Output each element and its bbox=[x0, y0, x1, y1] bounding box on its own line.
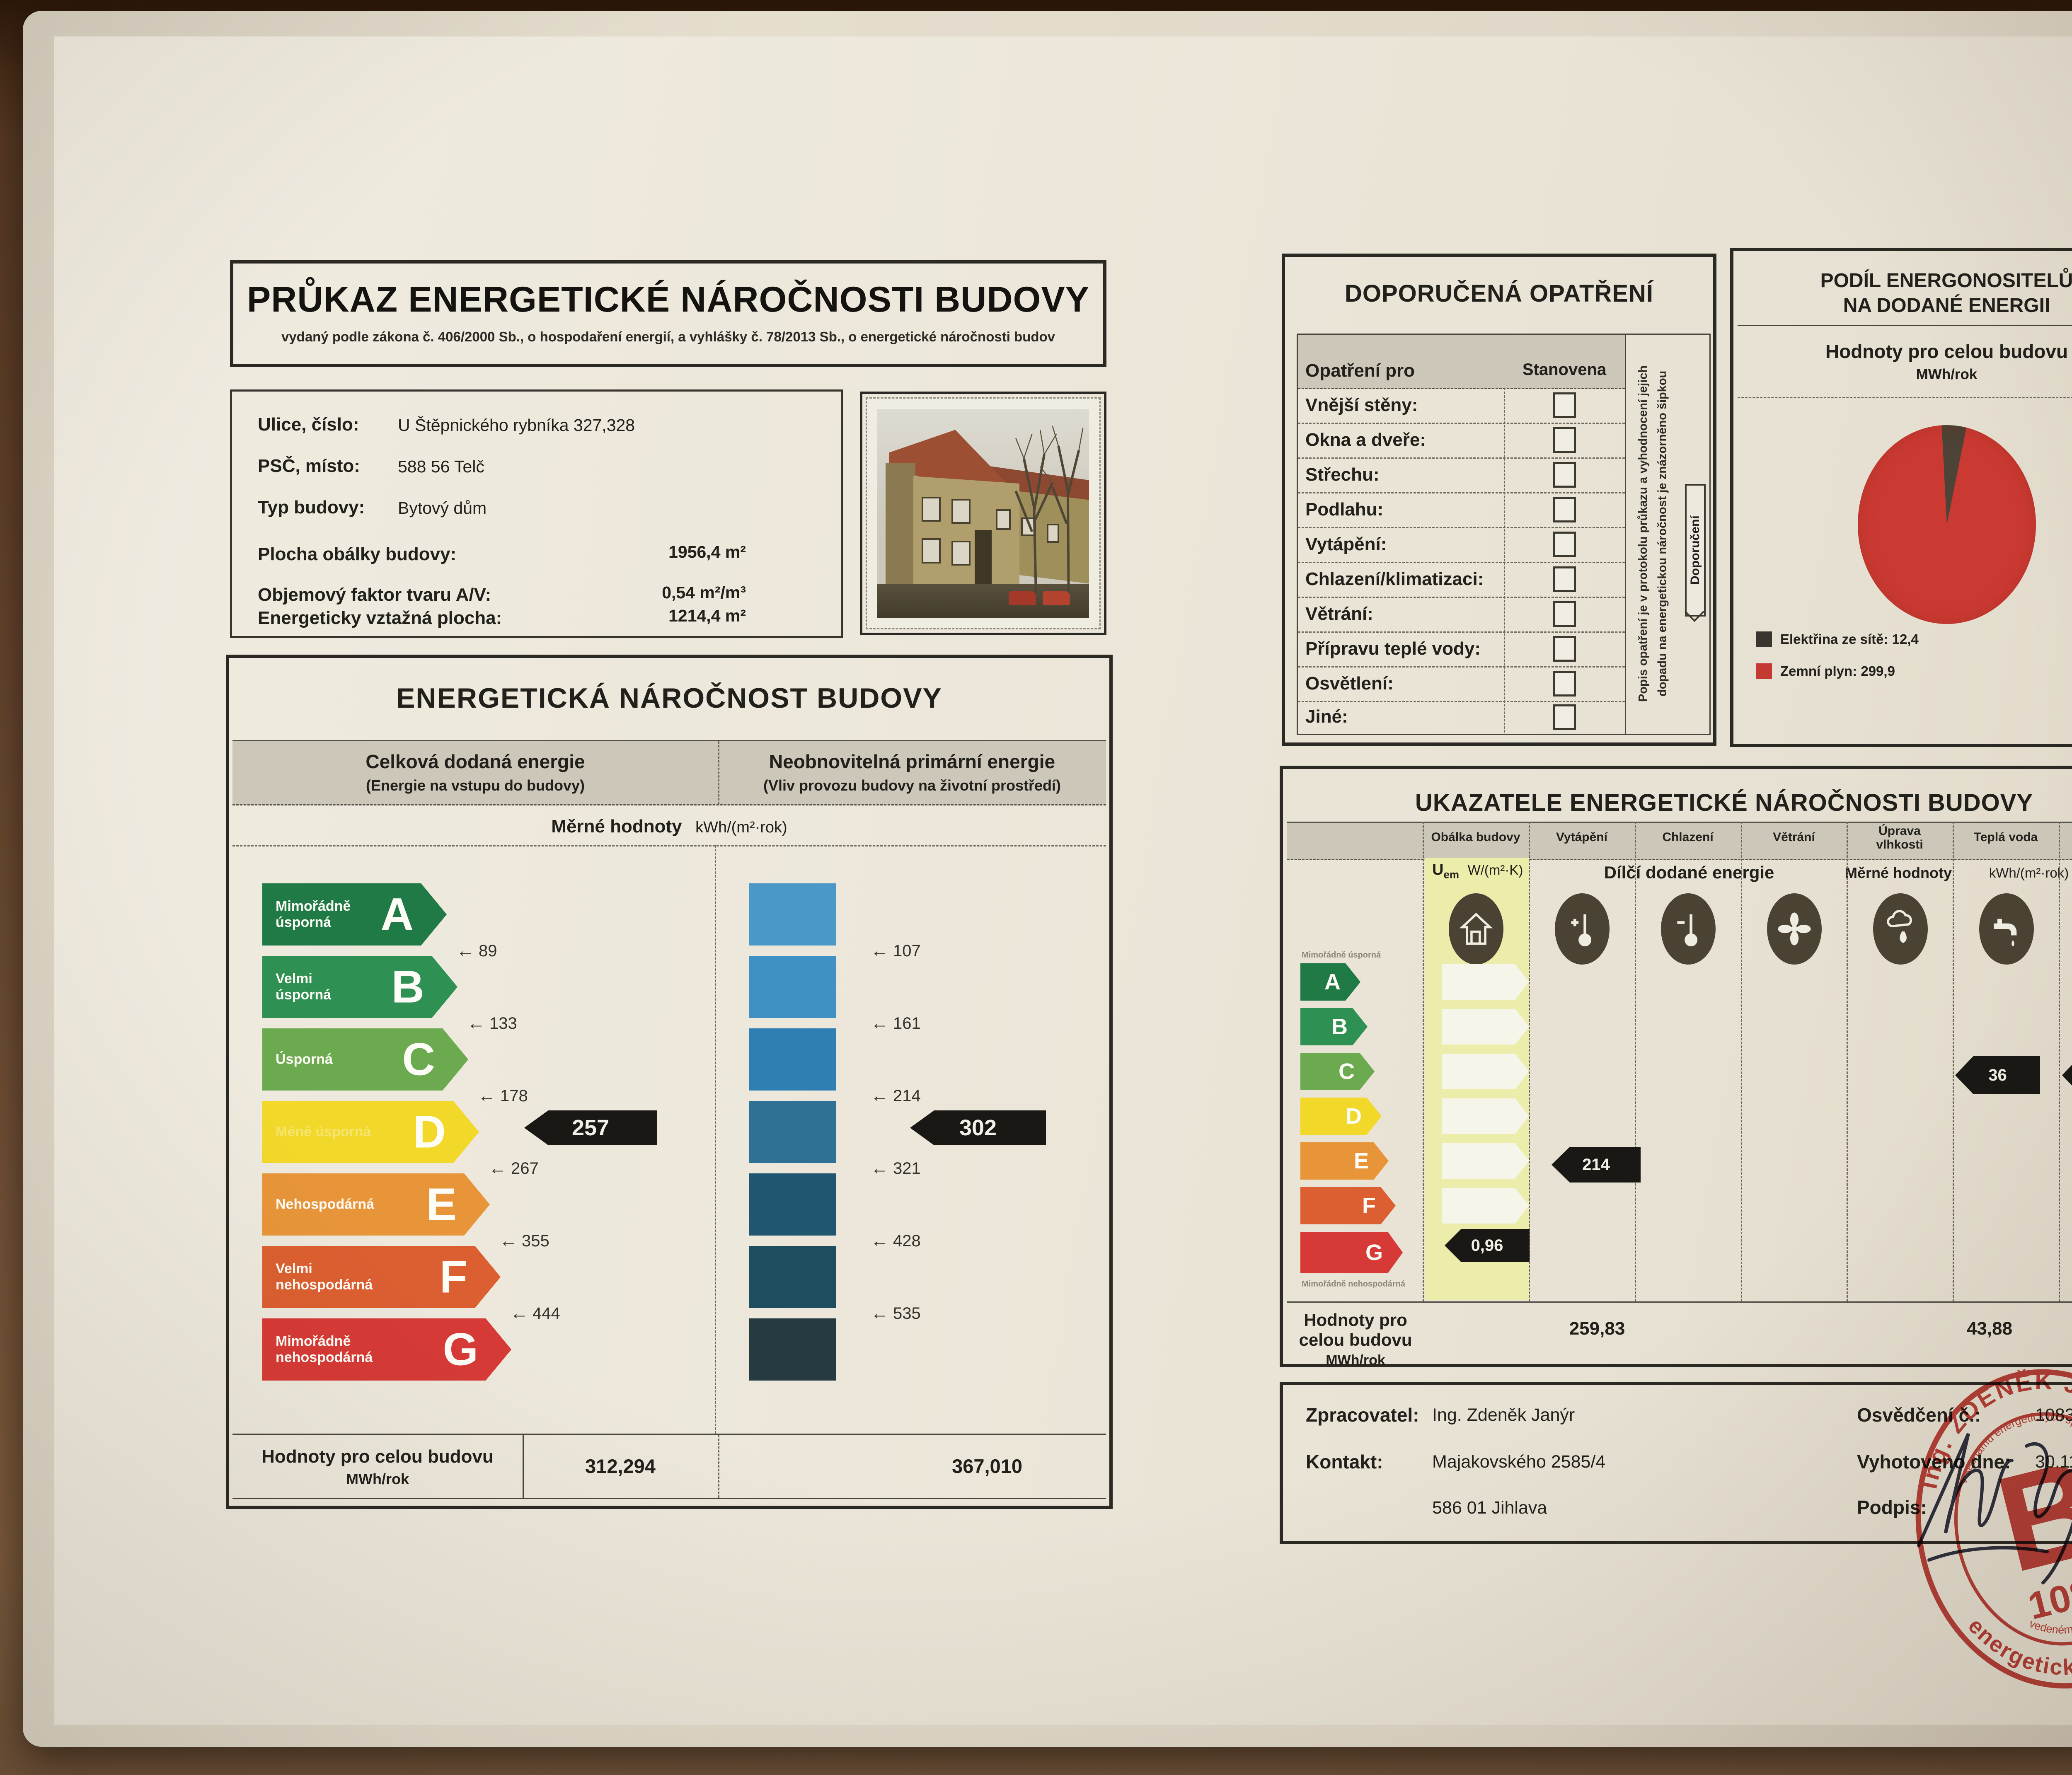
small-class-e: E bbox=[1300, 1142, 1389, 1180]
share-title: PODÍL ENERGONOSITELŮ NA DODANÉ ENERGII bbox=[1733, 268, 2072, 318]
small-class-a: A bbox=[1300, 963, 1360, 1001]
tick-arrow-icon bbox=[871, 1013, 887, 1034]
measures-side-note: Popis opatření je v protokolu průkazu a … bbox=[1634, 341, 1679, 726]
scale-note-bottom: Mimořádně nehospodárná bbox=[1302, 1279, 1405, 1289]
contact-line1: Majakovského 2585/4 bbox=[1432, 1452, 1605, 1472]
checkbox-chlazeni bbox=[1553, 566, 1576, 592]
measure-row: Střechu: bbox=[1298, 457, 1625, 493]
primary-scale-block bbox=[749, 1028, 836, 1091]
measure-row: Vytápění: bbox=[1298, 527, 1625, 563]
class-arrow-d: Méně úspornáD bbox=[262, 1101, 479, 1163]
humidity-icon bbox=[1873, 893, 1928, 965]
tick-arrow-icon bbox=[456, 941, 473, 961]
legend-swatch-electricity bbox=[1756, 631, 1772, 647]
primary-energy-header: Neobnovitelná primární energie (Vliv pro… bbox=[718, 750, 1106, 794]
scale-tick: 267 bbox=[489, 1158, 539, 1179]
energy-footer-band: Hodnoty pro celou budovu MWh/rok 312,294… bbox=[232, 1434, 1106, 1499]
col-header-chlazeni: Chlazení bbox=[1636, 830, 1740, 844]
energy-footer-label: Hodnoty pro celou budovu MWh/rok bbox=[232, 1446, 523, 1488]
tick-arrow-icon bbox=[871, 1231, 887, 1251]
measure-row: Jiné: bbox=[1298, 701, 1625, 733]
heating-total: 259,83 bbox=[1569, 1318, 1625, 1339]
checkbox-priprava-teple-vody bbox=[1553, 636, 1576, 662]
tick-arrow-icon bbox=[478, 1086, 494, 1106]
info-label: Energeticky vztažná plocha: bbox=[258, 608, 502, 629]
delivered-energy-header: Celková dodaná energie (Energie na vstup… bbox=[232, 750, 718, 794]
checkbox-vetrani bbox=[1553, 601, 1576, 627]
checkbox-okna-a-dvere bbox=[1553, 427, 1576, 453]
thermometer-minus-icon bbox=[1661, 893, 1716, 965]
subheader-units: kWh/(m²·rok) bbox=[1967, 865, 2072, 881]
info-label: Typ budovy: bbox=[258, 497, 365, 518]
tick-arrow-icon bbox=[871, 1086, 887, 1106]
envelope-scale-arrow bbox=[1442, 1143, 1529, 1179]
fan-icon bbox=[1767, 893, 1822, 965]
tick-arrow-icon bbox=[871, 1303, 887, 1324]
scale-tick: 428 bbox=[871, 1231, 921, 1251]
class-arrow-g: Mimořádně nehospodárnáG bbox=[262, 1318, 511, 1381]
info-label: Ulice, číslo: bbox=[258, 414, 359, 435]
small-class-c: C bbox=[1300, 1053, 1375, 1090]
col-header-obalka: Obálka budovy bbox=[1424, 830, 1527, 844]
envelope-scale-arrow bbox=[1442, 964, 1529, 1000]
legend-swatch-gas bbox=[1756, 663, 1772, 679]
col-header-osvetleni: Osvětlení bbox=[2060, 830, 2072, 844]
indicators-title: UKAZATELE ENERGETICKÉ NÁROČNOSTI BUDOVY bbox=[1283, 789, 2072, 817]
measure-row: Okna a dveře: bbox=[1298, 423, 1625, 459]
checkbox-vnejsi-steny bbox=[1553, 392, 1576, 418]
primary-total: 367,010 bbox=[718, 1455, 1109, 1478]
envelope-scale-arrow bbox=[1442, 1009, 1529, 1045]
envelope-value-arrow: 0,96 bbox=[1445, 1229, 1530, 1262]
indicators-panel: UKAZATELE ENERGETICKÉ NÁROČNOSTI BUDOVY … bbox=[1280, 766, 2072, 1367]
uem-label: Uem W/(m²·K) bbox=[1432, 861, 1523, 881]
energy-header-band: Celková dodaná energie (Energie na vstup… bbox=[232, 740, 1106, 805]
scale-tick: 133 bbox=[467, 1013, 517, 1034]
energy-share-pie-chart bbox=[1858, 425, 2036, 624]
scale-tick: 535 bbox=[871, 1303, 921, 1324]
small-class-d: D bbox=[1300, 1098, 1382, 1135]
info-value: 0,54 m²/m³ bbox=[572, 583, 746, 602]
envelope-scale-arrow bbox=[1442, 1054, 1529, 1089]
measures-col1-header: Opatření pro bbox=[1305, 360, 1415, 381]
primary-scale-block bbox=[749, 1318, 836, 1381]
scale-tick: 178 bbox=[478, 1086, 528, 1106]
energy-performance-panel: ENERGETICKÁ NÁROČNOST BUDOVY Celková dod… bbox=[226, 655, 1113, 1509]
primary-scale-block bbox=[749, 956, 836, 1018]
class-arrow-c: ÚspornáC bbox=[262, 1028, 468, 1091]
scale-tick: 89 bbox=[456, 941, 497, 961]
legend-item-electricity: Elektřina ze sítě: 12,4 bbox=[1756, 631, 1919, 647]
info-label: Objemový faktor tvaru A/V: bbox=[258, 585, 491, 605]
energy-share-panel: PODÍL ENERGONOSITELŮ NA DODANÉ ENERGII H… bbox=[1730, 248, 2072, 747]
checkbox-podlahu bbox=[1553, 497, 1576, 522]
scale-note-top: Mimořádně úsporná bbox=[1302, 950, 1381, 960]
scale-tick: 161 bbox=[871, 1013, 921, 1034]
legend-item-gas: Zemní plyn: 299,9 bbox=[1756, 663, 1895, 679]
photo-tint bbox=[877, 409, 1089, 618]
info-label: Plocha obálky budovy: bbox=[258, 544, 456, 565]
small-class-f: F bbox=[1300, 1187, 1396, 1224]
contact-line2: 586 01 Jihlava bbox=[1432, 1498, 1547, 1518]
measures-header: Opatření pro Stanovena bbox=[1298, 335, 1625, 389]
building-photo bbox=[877, 409, 1089, 618]
tick-arrow-icon bbox=[871, 1158, 887, 1179]
title-panel: PRŮKAZ ENERGETICKÉ NÁROČNOSTI BUDOVY vyd… bbox=[230, 260, 1106, 367]
share-units: MWh/rok bbox=[1733, 366, 2072, 383]
tick-arrow-icon bbox=[871, 941, 887, 961]
heating-value-arrow: 214 bbox=[1552, 1147, 1641, 1183]
col-header-vetrani: Větrání bbox=[1742, 830, 1846, 844]
class-arrow-b: Velmi úspornáB bbox=[262, 956, 457, 1018]
house-icon bbox=[1449, 893, 1503, 965]
envelope-scale-arrow bbox=[1442, 1098, 1529, 1134]
info-value: 588 56 Telč bbox=[398, 457, 484, 476]
col-header-vytapeni: Vytápění bbox=[1530, 830, 1634, 844]
measures-panel: DOPORUČENÁ OPATŘENÍ Opatření pro Stanove… bbox=[1282, 254, 1716, 746]
indicators-footer-label: Hodnoty pro celou budovu MWh/rok bbox=[1287, 1310, 1424, 1369]
measure-row: Větrání: bbox=[1298, 597, 1625, 633]
measures-col2-header: Stanovena bbox=[1504, 360, 1625, 379]
info-value: Bytový dům bbox=[398, 498, 487, 518]
lighting-value-arrow: 7 bbox=[2062, 1056, 2072, 1094]
building-photo-frame bbox=[860, 392, 1106, 635]
primary-value-arrow: 302 bbox=[910, 1110, 1046, 1145]
primary-scale-block bbox=[749, 1246, 836, 1308]
contact-label: Kontakt: bbox=[1306, 1451, 1383, 1473]
measures-side-strip: Popis opatření je v protokolu průkazu a … bbox=[1625, 335, 1711, 734]
small-class-g: G bbox=[1300, 1232, 1403, 1273]
tick-arrow-icon bbox=[467, 1013, 484, 1034]
hot-water-total: 43,88 bbox=[1967, 1318, 2012, 1339]
delivered-value-arrow: 257 bbox=[524, 1110, 657, 1145]
class-arrow-e: NehospodárnáE bbox=[262, 1173, 490, 1236]
measure-row: Podlahu: bbox=[1298, 492, 1625, 528]
page-subtitle: vydaný podle zákona č. 406/2000 Sb., o h… bbox=[233, 329, 1103, 345]
info-value: 1956,4 m² bbox=[572, 542, 746, 562]
recommendation-tag: Doporučení bbox=[1685, 484, 1706, 617]
primary-scale-block bbox=[749, 1101, 836, 1163]
checkbox-jine bbox=[1553, 704, 1576, 730]
measures-table: Opatření pro Stanovena Vnější stěny: Okn… bbox=[1297, 334, 1711, 735]
scale-tick: 444 bbox=[510, 1303, 560, 1324]
subheader-specific-values: Měrné hodnoty bbox=[1834, 864, 1963, 882]
delivered-total: 312,294 bbox=[523, 1455, 718, 1478]
measure-row: Vnější stěny: bbox=[1298, 388, 1625, 424]
class-arrow-a: Mimořádně úspornáA bbox=[262, 883, 447, 946]
processor-label: Zpracovatel: bbox=[1306, 1404, 1419, 1426]
info-value: 1214,4 m² bbox=[572, 606, 746, 626]
share-subtitle: Hodnoty pro celou budovu bbox=[1733, 340, 2072, 363]
measure-row: Chlazení/klimatizaci: bbox=[1298, 562, 1625, 598]
scale-tick: 107 bbox=[871, 941, 921, 961]
envelope-scale-arrow bbox=[1442, 1188, 1529, 1224]
checkbox-strechu bbox=[1553, 462, 1576, 488]
measure-row: Osvětlení: bbox=[1298, 666, 1625, 702]
energy-panel-title: ENERGETICKÁ NÁROČNOST BUDOVY bbox=[229, 682, 1109, 714]
measure-row: Přípravu teplé vody: bbox=[1298, 631, 1625, 667]
small-class-b: B bbox=[1300, 1008, 1368, 1045]
processor-value: Ing. Zdeněk Janýr bbox=[1432, 1405, 1575, 1425]
info-label: PSČ, místo: bbox=[258, 456, 360, 476]
checkbox-osvetleni bbox=[1553, 671, 1576, 696]
class-arrow-f: Velmi nehospodárnáF bbox=[262, 1246, 501, 1308]
subheader-partial-energies: Dílčí dodané energie bbox=[1581, 863, 1797, 883]
scale-tick: 355 bbox=[499, 1231, 549, 1251]
scale-tick: 214 bbox=[871, 1086, 921, 1106]
page-title: PRŮKAZ ENERGETICKÉ NÁROČNOSTI BUDOVY bbox=[233, 279, 1103, 320]
tap-icon bbox=[1979, 893, 2034, 965]
col-header-uprava-vlhkosti: Úprava vlhkosti bbox=[1848, 824, 1951, 851]
checkbox-vytapeni bbox=[1553, 532, 1576, 557]
signature-ink bbox=[1906, 1409, 2072, 1603]
indicators-footer-band: Hodnoty pro celou budovu MWh/rok 259,83 … bbox=[1287, 1301, 2072, 1354]
info-value: U Štěpnického rybníka 327,328 bbox=[398, 416, 635, 435]
scale-tick: 321 bbox=[871, 1158, 921, 1179]
building-info-box: Ulice, číslo: U Štěpnického rybníka 327,… bbox=[230, 389, 843, 638]
thermometer-plus-icon bbox=[1555, 893, 1610, 965]
measures-title: DOPORUČENÁ OPATŘENÍ bbox=[1285, 280, 1713, 307]
tick-arrow-icon bbox=[510, 1303, 527, 1324]
tick-arrow-icon bbox=[499, 1231, 516, 1251]
tick-arrow-icon bbox=[489, 1158, 505, 1179]
units-row: Měrné hodnoty kWh/(m²·rok) bbox=[229, 816, 1109, 837]
primary-scale-block bbox=[749, 883, 836, 946]
col-header-tepla-voda: Teplá voda bbox=[1954, 830, 2057, 844]
primary-scale-block bbox=[749, 1173, 836, 1236]
hot-water-value-arrow: 36 bbox=[1955, 1056, 2040, 1094]
photographed-document: PRŮKAZ ENERGETICKÉ NÁROČNOSTI BUDOVY vyd… bbox=[0, 0, 2072, 1775]
